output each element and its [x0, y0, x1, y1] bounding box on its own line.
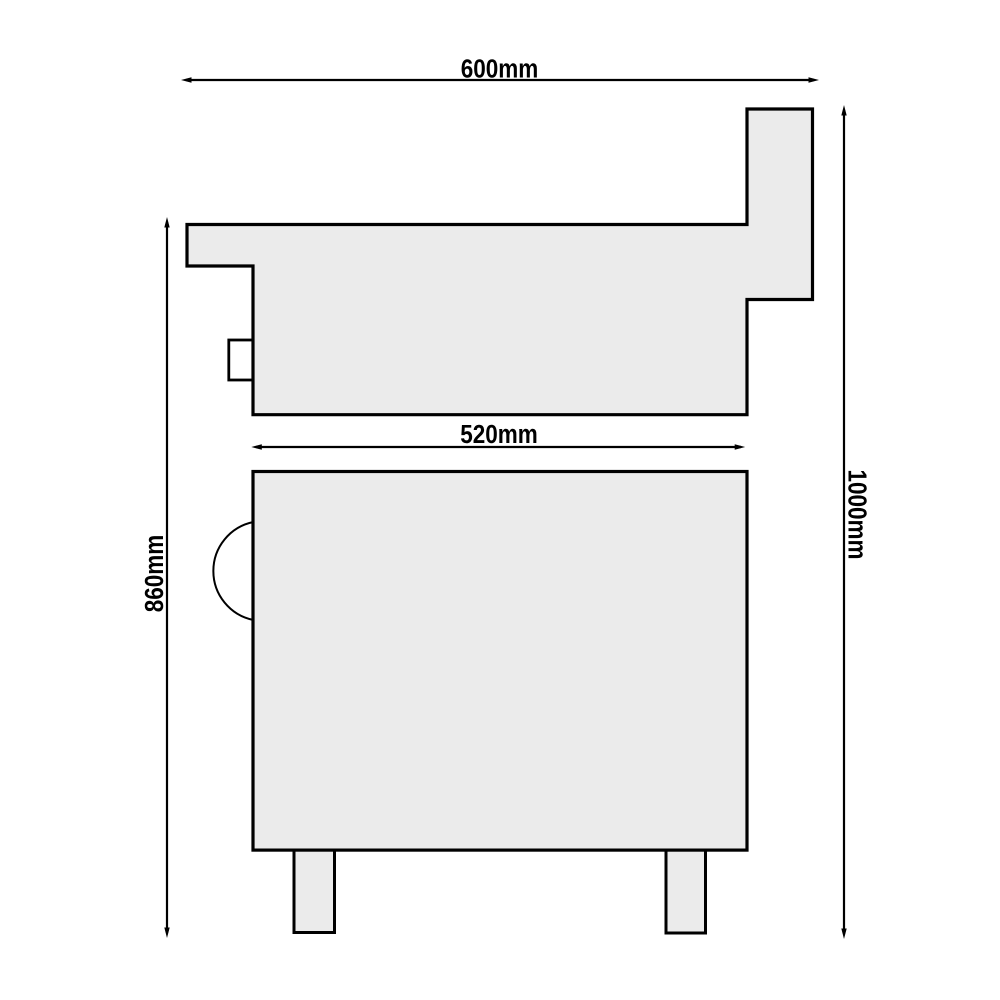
svg-text:600mm: 600mm — [461, 55, 539, 84]
svg-text:860mm: 860mm — [141, 535, 170, 613]
svg-text:520mm: 520mm — [460, 421, 538, 450]
svg-text:1000mm: 1000mm — [842, 469, 871, 559]
